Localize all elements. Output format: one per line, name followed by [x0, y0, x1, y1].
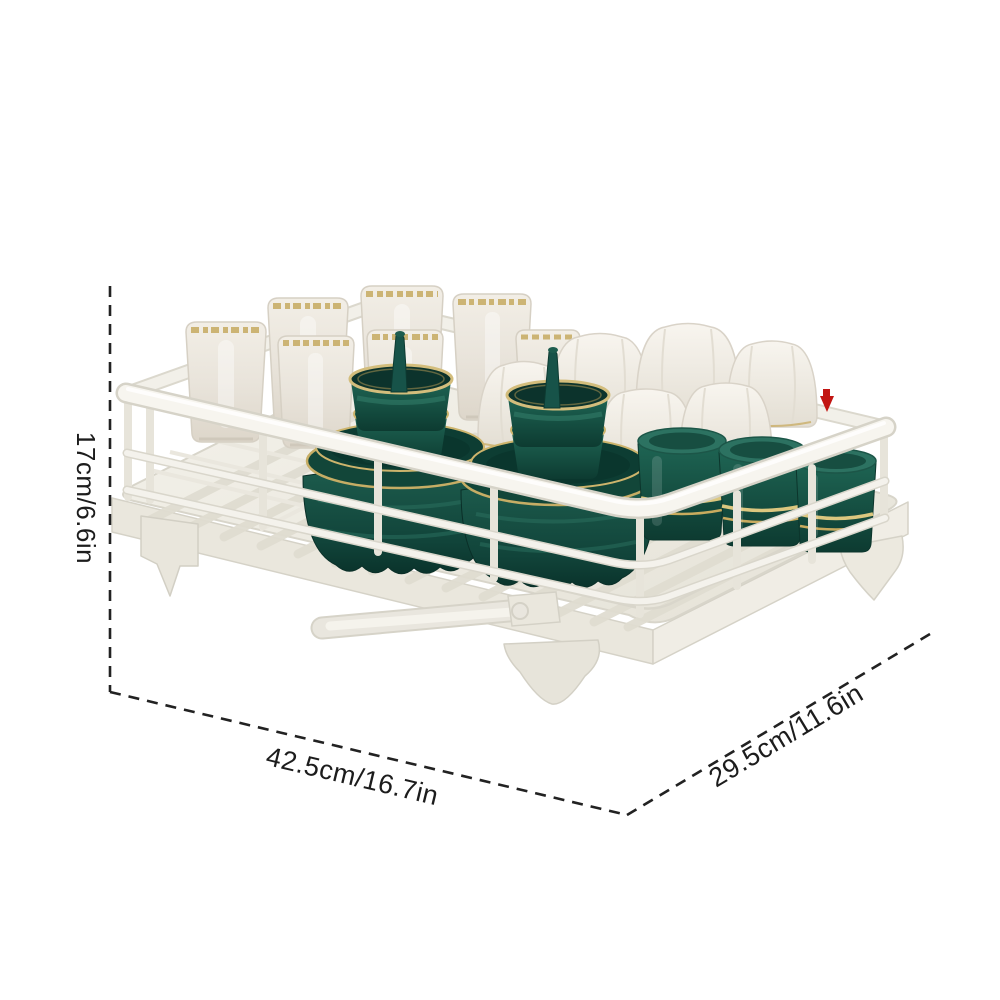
tray-left-foot	[141, 516, 198, 596]
height-dimension-label: 17cm/6.6in	[71, 432, 101, 564]
product-image: 17cm/6.6in 42.5cm/16.7in 29.5cm/11.6in	[0, 0, 1000, 1000]
width-dimension-label: 42.5cm/16.7in	[263, 741, 441, 811]
tray-front-foot	[504, 640, 599, 704]
width-dimension-line	[110, 692, 627, 815]
depth-dimension-label: 29.5cm/11.6in	[704, 678, 869, 793]
dish-rack-scene: 17cm/6.6in 42.5cm/16.7in 29.5cm/11.6in	[0, 0, 1000, 1000]
